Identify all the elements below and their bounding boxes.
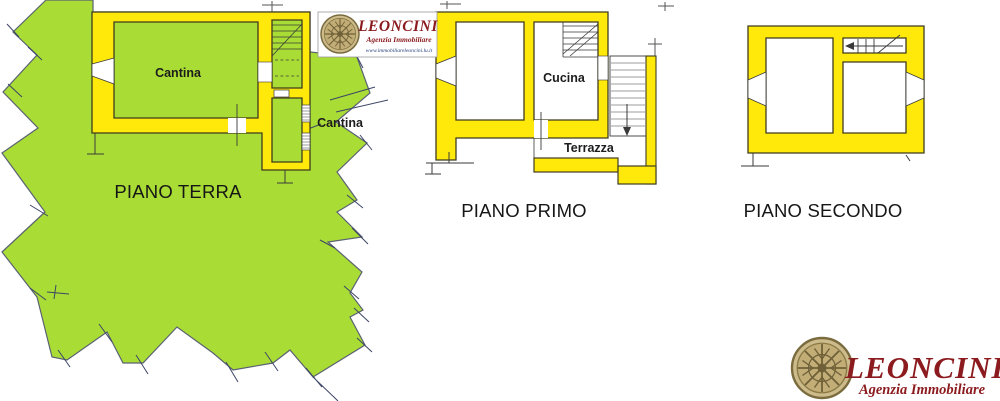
top-logo-website: www.immobiliareleoncini.lu.it xyxy=(366,48,433,54)
piano-primo-label: PIANO PRIMO xyxy=(461,200,587,221)
stair-left-arrow xyxy=(845,42,854,50)
secondo-walls xyxy=(748,26,924,153)
terra-door-gap xyxy=(258,62,272,82)
bottom-logo-name: LEONCINI xyxy=(844,350,1000,385)
top-logo-name: LEONCINI xyxy=(357,18,438,35)
floorplan-drawing: Cantina Cantina PIANO TERRA xyxy=(0,0,1000,401)
survey-marks-top xyxy=(262,1,674,12)
primo-ground-marks xyxy=(425,152,474,174)
piano-secondo-plan: PIANO SECONDO xyxy=(741,26,924,221)
primo-door-right xyxy=(598,56,608,80)
top-logo-tagline: Agenzia Immobiliare xyxy=(365,35,432,44)
leoncini-logo-top: LEONCINI Agenzia Immobiliare www.immobil… xyxy=(318,12,438,57)
primo-walls xyxy=(436,12,608,160)
secondo-ground-marks xyxy=(741,153,910,166)
primo-stair-rail xyxy=(646,56,656,184)
leoncini-logo-bottom: LEONCINI Agenzia Immobiliare xyxy=(792,338,1000,398)
bottom-logo-tagline: Agenzia Immobiliare xyxy=(858,382,986,398)
piano-secondo-label: PIANO SECONDO xyxy=(744,200,903,221)
leoncini-emblem-icon xyxy=(792,338,852,398)
piano-terra-label: PIANO TERRA xyxy=(114,181,242,202)
primo-inner-staircase xyxy=(563,22,598,57)
terra-room1-label: Cantina xyxy=(155,66,202,80)
cucina-label: Cucina xyxy=(543,71,586,85)
leoncini-emblem-icon xyxy=(321,15,359,53)
terra-room2-label: Cantina xyxy=(317,116,364,130)
floorplan-page: Cantina Cantina PIANO TERRA xyxy=(0,0,1000,401)
terra-landing-box xyxy=(274,90,289,97)
terrazza-label: Terrazza xyxy=(564,141,615,155)
piano-primo-plan: Cucina Terrazza PIANO PRIMO xyxy=(425,12,662,221)
